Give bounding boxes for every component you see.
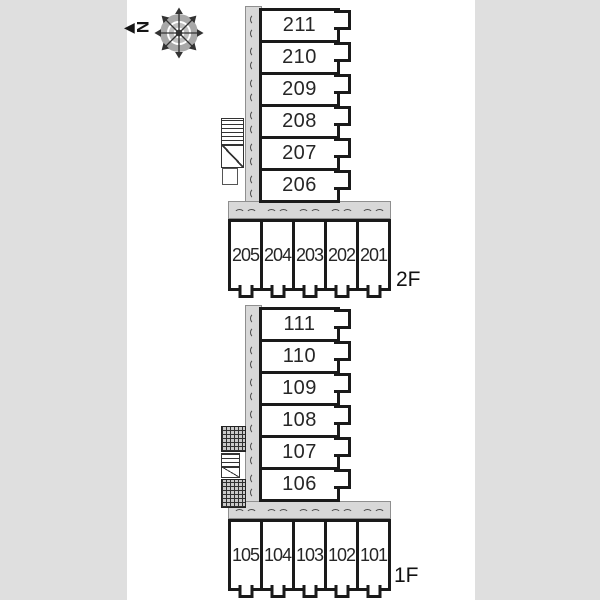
room-210: 210 xyxy=(259,40,340,75)
bay-annex xyxy=(334,469,351,489)
bay-annex xyxy=(334,138,351,158)
floor-label-1f: 1F xyxy=(394,564,419,588)
room-number: 104 xyxy=(263,522,292,588)
entry-step xyxy=(366,585,381,598)
bay-annex xyxy=(334,373,351,393)
room-111: 111 xyxy=(259,307,340,342)
room-number: 101 xyxy=(359,522,388,588)
bay-annex xyxy=(334,106,351,126)
bay-annex xyxy=(334,10,351,30)
room-number: 105 xyxy=(231,522,260,588)
stair-treads xyxy=(222,119,243,146)
entry-step xyxy=(302,285,317,298)
room-108: 108 xyxy=(259,403,340,438)
room-number: 201 xyxy=(359,222,388,288)
stair-landing-hatch-lower xyxy=(221,479,246,508)
north-letter: N xyxy=(132,21,152,33)
room-stack-2f: 211 210 209 208 207 206 xyxy=(259,8,340,203)
bay-annex xyxy=(334,74,351,94)
bay-annex xyxy=(334,170,351,190)
room-number: 208 xyxy=(262,107,337,136)
bay-annex xyxy=(334,42,351,62)
room-109: 109 xyxy=(259,371,340,406)
room-209: 209 xyxy=(259,72,340,107)
bay-annex xyxy=(334,309,351,329)
room-104: 104 xyxy=(260,519,295,591)
room-203: 203 xyxy=(292,219,327,291)
room-201: 201 xyxy=(356,219,391,291)
bay-annex xyxy=(334,341,351,361)
stair-landing-2f xyxy=(222,168,238,185)
room-number: 106 xyxy=(262,470,337,499)
room-206: 206 xyxy=(259,168,340,203)
room-205: 205 xyxy=(228,219,263,291)
room-number: 206 xyxy=(262,171,337,200)
entry-step xyxy=(238,285,253,298)
floor-label-2f: 2F xyxy=(396,268,421,292)
stair-break-line xyxy=(222,467,239,477)
entry-step xyxy=(270,285,285,298)
compass-rose-icon xyxy=(150,4,208,62)
entry-step xyxy=(366,285,381,298)
room-107: 107 xyxy=(259,435,340,470)
room-number: 107 xyxy=(262,438,337,467)
staircase-1f-icon xyxy=(221,453,240,478)
room-105: 105 xyxy=(228,519,263,591)
room-number: 207 xyxy=(262,139,337,168)
room-208: 208 xyxy=(259,104,340,139)
room-number: 205 xyxy=(231,222,260,288)
room-number: 209 xyxy=(262,75,337,104)
room-number: 102 xyxy=(327,522,356,588)
room-number: 202 xyxy=(327,222,356,288)
room-number: 204 xyxy=(263,222,292,288)
stair-landing-hatch-upper xyxy=(221,426,246,452)
bay-annex xyxy=(334,437,351,457)
north-indicator: ◀ N xyxy=(124,17,148,37)
room-number: 203 xyxy=(295,222,324,288)
bay-annex xyxy=(334,405,351,425)
entry-step xyxy=(270,585,285,598)
room-102: 102 xyxy=(324,519,359,591)
floorplan-canvas: ◀ N 211 210 209 208 207 206 205 204 203 … xyxy=(0,0,600,600)
room-number: 110 xyxy=(262,342,337,371)
room-number: 210 xyxy=(262,43,337,72)
staircase-2f-icon xyxy=(221,118,244,168)
room-number: 211 xyxy=(262,11,337,40)
stair-break-line xyxy=(222,145,243,167)
entry-step xyxy=(334,285,349,298)
room-number: 111 xyxy=(262,310,337,339)
entry-step xyxy=(334,585,349,598)
entry-step xyxy=(302,585,317,598)
room-stack-1f: 111 110 109 108 107 106 xyxy=(259,307,340,502)
room-number: 109 xyxy=(262,374,337,403)
room-number: 103 xyxy=(295,522,324,588)
room-row-2f: 205 204 203 202 201 xyxy=(228,219,388,291)
entry-step xyxy=(238,585,253,598)
room-202: 202 xyxy=(324,219,359,291)
room-106: 106 xyxy=(259,467,340,502)
room-204: 204 xyxy=(260,219,295,291)
room-103: 103 xyxy=(292,519,327,591)
stair-treads xyxy=(222,454,239,468)
room-211: 211 xyxy=(259,8,340,43)
room-101: 101 xyxy=(356,519,391,591)
room-207: 207 xyxy=(259,136,340,171)
room-number: 108 xyxy=(262,406,337,435)
room-110: 110 xyxy=(259,339,340,374)
room-row-1f: 105 104 103 102 101 xyxy=(228,519,388,591)
